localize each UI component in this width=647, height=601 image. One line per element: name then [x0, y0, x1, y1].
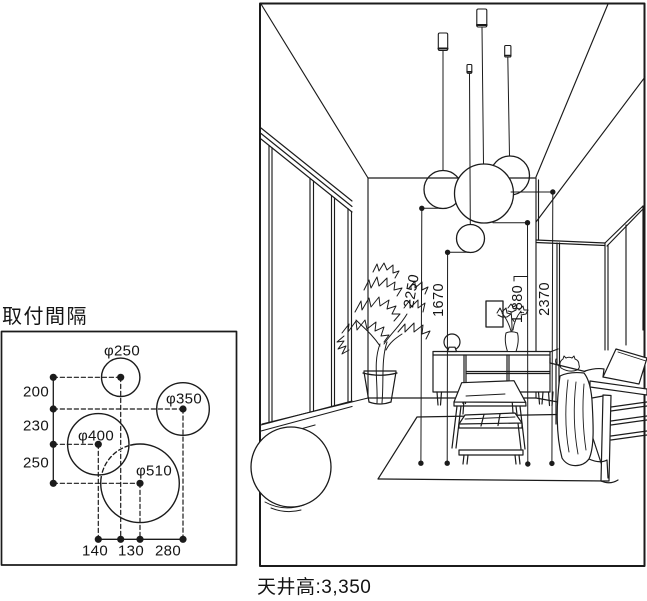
col-gap-label-2: 130	[118, 543, 144, 560]
row-gap-label-3: 250	[23, 455, 49, 472]
fixture-dia-label-510: φ510	[136, 463, 172, 480]
col-gap-label-3: 280	[155, 543, 181, 560]
drop-height-label-2370: 2370	[537, 282, 553, 316]
fixture-dia-label-350: φ350	[166, 391, 202, 408]
drop-height-label-1670: 1670	[431, 283, 447, 317]
fixture-dia-label-400: φ400	[78, 428, 114, 445]
pendant-sphere-large	[455, 164, 514, 223]
room-illustration	[251, 4, 647, 567]
coffee-table	[452, 381, 526, 464]
spacing-diagram-frame	[2, 332, 237, 566]
spacing-diagram-title: 取付間隔	[2, 300, 88, 329]
row-gap-label-2: 230	[23, 418, 49, 435]
sofa-front-post	[601, 395, 611, 481]
col-gap-label-1: 140	[82, 543, 108, 560]
drop-height-label-1880: 1,880	[510, 285, 526, 323]
catalog-diagram-page: 取付間隔 φ250 φ350 φ400 φ510 200 230 250 140…	[0, 0, 647, 601]
fixture-dia-label-250: φ250	[104, 343, 140, 360]
pendant-sphere-small	[457, 225, 485, 253]
row-gap-label-1: 200	[23, 384, 49, 401]
spacing-diagram	[2, 332, 237, 566]
ceiling-height-caption: 天井高:3,350	[257, 572, 371, 599]
